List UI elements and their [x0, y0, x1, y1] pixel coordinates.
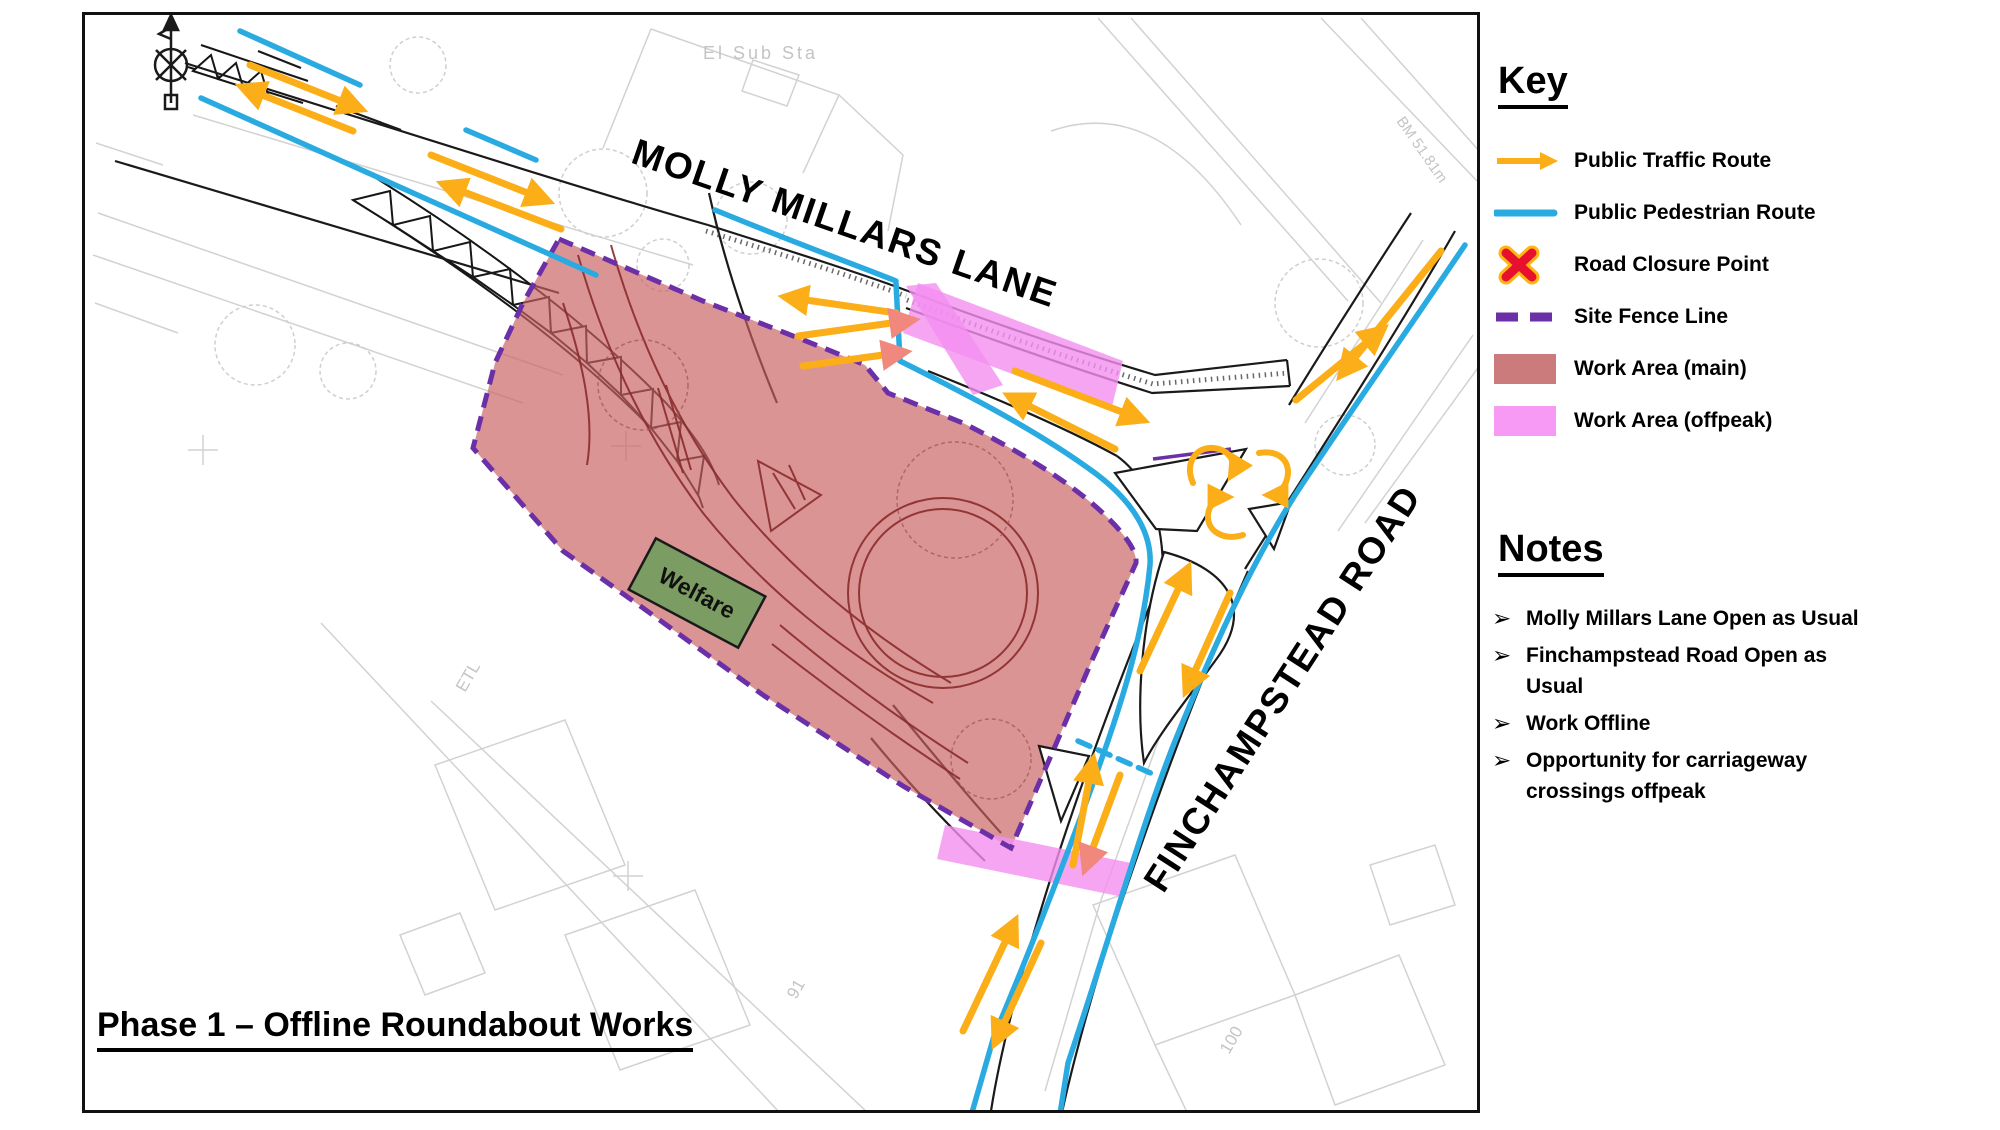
note-bullet-icon: ➢ [1492, 708, 1526, 739]
note-item: ➢ Finchampstead Road Open as Usual [1492, 640, 1992, 702]
key-heading: Key [1498, 60, 1568, 109]
key-item-pedestrian-route: Public Pedestrian Route [1494, 187, 1992, 239]
pedestrian-route-line-icon [1494, 201, 1574, 225]
north-arrow-icon [155, 15, 187, 109]
molly-millars-lane-label: MOLLY MILLARS LANE [627, 131, 1063, 315]
note-bullet-icon: ➢ [1492, 745, 1526, 776]
key-item-site-fence: Site Fence Line [1494, 291, 1992, 343]
phase-title: Phase 1 – Offline Roundabout Works [97, 1006, 693, 1052]
label-100: 100 [1216, 1023, 1247, 1057]
key-label-fence: Site Fence Line [1574, 305, 1728, 329]
label-91: 91 [783, 976, 809, 1002]
site-plan-svg: Welfare [85, 15, 1477, 1110]
key-label-pedestrian: Public Pedestrian Route [1574, 201, 1816, 225]
note-bullet-icon: ➢ [1492, 640, 1526, 671]
etl-label: ETL [452, 658, 484, 695]
road-closure-x-icon [1494, 245, 1574, 285]
notes-heading: Notes [1498, 528, 1604, 577]
note-item: ➢ Molly Millars Lane Open as Usual [1492, 603, 1992, 634]
note-item: ➢ Opportunity for carriageway crossings … [1492, 745, 1992, 807]
el-sub-sta-label: El Sub Sta [703, 43, 818, 63]
key-item-work-area-offpeak: Work Area (offpeak) [1494, 395, 1992, 447]
notes-list: ➢ Molly Millars Lane Open as Usual ➢ Fin… [1492, 603, 1992, 807]
traffic-management-plan-page: { "map": { "phase_title": "Phase 1 – Off… [0, 0, 2000, 1130]
site-plan-frame: Welfare [82, 12, 1480, 1113]
bench-mark-label: BM 51.81m [1393, 114, 1451, 187]
key-list: Public Traffic Route Public Pedestrian R… [1494, 135, 1992, 447]
site-fence-dash-icon [1494, 305, 1574, 329]
key-label-work-offpeak: Work Area (offpeak) [1574, 409, 1772, 433]
key-label-work-main: Work Area (main) [1574, 357, 1747, 381]
note-bullet-icon: ➢ [1492, 603, 1526, 634]
work-area-offpeak-swatch [1494, 406, 1574, 436]
note-item: ➢ Work Offline [1492, 708, 1992, 739]
traffic-route-arrow-icon [1494, 149, 1574, 173]
work-area-main-swatch [1494, 354, 1574, 384]
key-label-traffic: Public Traffic Route [1574, 149, 1771, 173]
key-item-road-closure: Road Closure Point [1494, 239, 1992, 291]
key-item-traffic-route: Public Traffic Route [1494, 135, 1992, 187]
key-label-closure: Road Closure Point [1574, 253, 1769, 277]
key-item-work-area-main: Work Area (main) [1494, 343, 1992, 395]
notes-panel: Notes ➢ Molly Millars Lane Open as Usual… [1492, 528, 1992, 813]
key-panel: Key Public Traffic Route Public Pedestri… [1492, 60, 1992, 447]
